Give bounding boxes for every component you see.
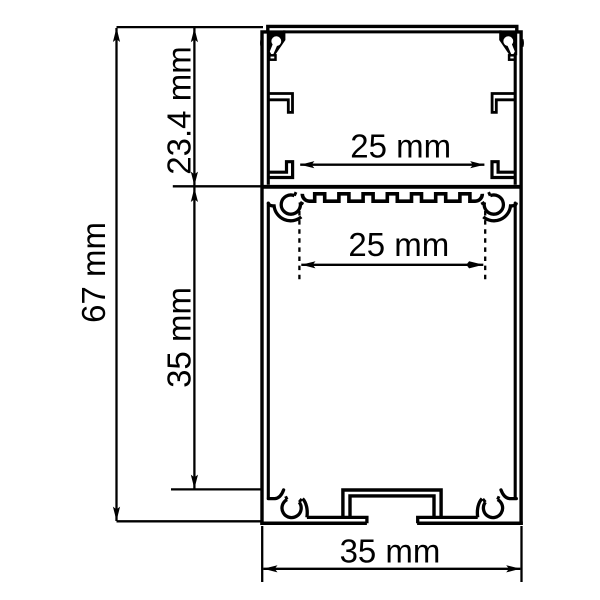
svg-text:35 mm: 35 mm bbox=[340, 532, 441, 569]
svg-text:67 mm: 67 mm bbox=[75, 222, 112, 323]
svg-text:25 mm: 25 mm bbox=[348, 226, 449, 263]
svg-text:23.4 mm: 23.4 mm bbox=[161, 46, 198, 174]
svg-text:25 mm: 25 mm bbox=[350, 127, 451, 164]
svg-text:35 mm: 35 mm bbox=[161, 287, 198, 388]
